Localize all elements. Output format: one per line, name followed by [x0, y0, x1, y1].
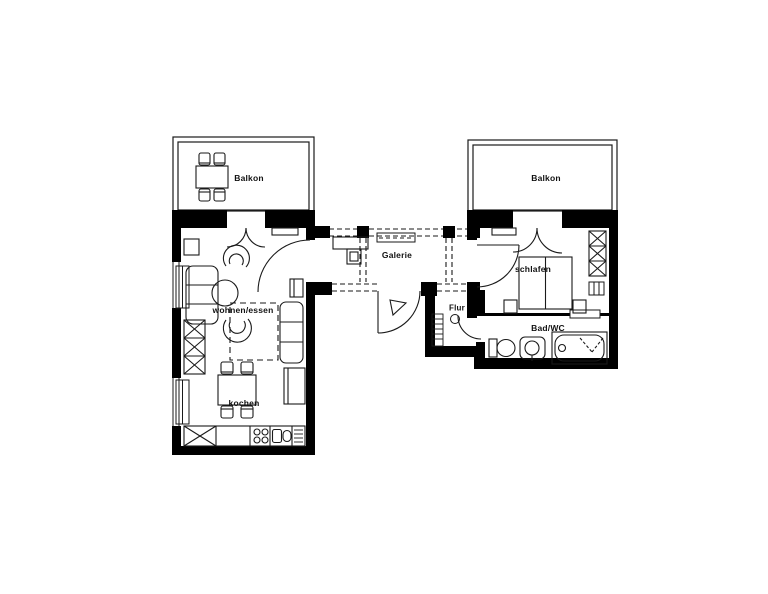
coffee-table-icon — [212, 280, 238, 306]
bed-icon — [504, 257, 586, 313]
living-room-door — [258, 240, 310, 292]
kitchen-table-icon — [218, 362, 256, 418]
sofa-right-icon — [280, 302, 303, 363]
armchair-bottom-icon — [223, 319, 251, 342]
armchair-top-icon — [223, 245, 249, 267]
toilet-icon — [489, 339, 515, 357]
floor-plan-page: Balkon Balkon Galerie schlafen Flur Bad/… — [0, 0, 768, 594]
sideboard-icon — [290, 279, 303, 297]
tall-cabinet-icon — [284, 368, 305, 404]
room-divider-dashed — [230, 303, 278, 360]
sofa-left-icon — [186, 266, 218, 324]
balcony-left-door — [227, 228, 298, 247]
galerie-shelf — [377, 233, 415, 242]
balcony-table-icon — [196, 153, 228, 201]
balcony-right — [468, 140, 617, 211]
balcony-left — [173, 137, 314, 211]
wardrobe-icon — [589, 231, 606, 276]
floor-plan-drawing — [0, 0, 768, 594]
balcony-right-door — [492, 228, 562, 253]
side-table-icon — [184, 239, 199, 255]
bedroom-door — [477, 245, 519, 287]
galerie-sink-icon — [333, 237, 368, 264]
closet-left-icon — [184, 320, 205, 374]
bedroom-radiator-icon — [589, 282, 604, 295]
kitchen-counter — [184, 426, 305, 446]
washbasin-icon — [520, 337, 545, 361]
flur-bath-door — [458, 316, 481, 339]
bath-window-sill — [570, 310, 600, 318]
right-wing-walls — [467, 210, 618, 369]
entrance-door — [378, 291, 420, 333]
